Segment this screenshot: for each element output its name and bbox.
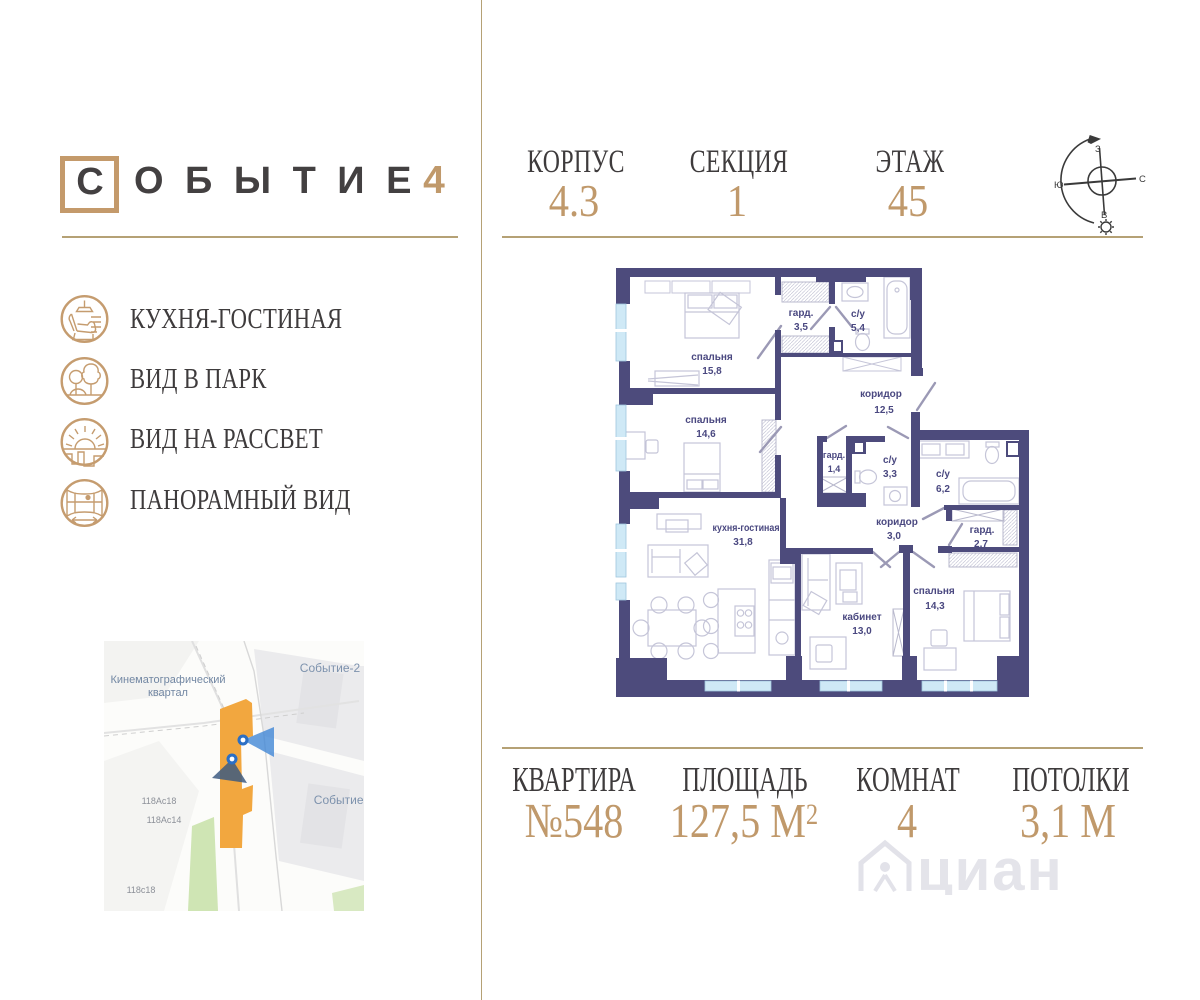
- svg-text:гард.: гард.: [789, 308, 814, 319]
- svg-text:спальня: спальня: [685, 415, 727, 426]
- svg-text:118с18: 118с18: [127, 885, 156, 895]
- svg-text:гард.: гард.: [823, 450, 845, 460]
- svg-text:13,0: 13,0: [852, 626, 872, 637]
- svg-text:с/у: с/у: [936, 469, 950, 480]
- svg-text:коридор: коридор: [876, 517, 918, 528]
- svg-text:кабинет: кабинет: [842, 611, 881, 623]
- svg-text:2,7: 2,7: [974, 539, 988, 550]
- svg-text:с/у: с/у: [883, 455, 897, 466]
- svg-text:118Ас14: 118Ас14: [147, 815, 182, 825]
- svg-text:гард.: гард.: [970, 525, 995, 536]
- svg-text:3,5: 3,5: [794, 322, 808, 333]
- svg-text:6,2: 6,2: [936, 484, 950, 495]
- svg-text:3,3: 3,3: [883, 469, 897, 480]
- svg-text:Кинематографический: Кинематографический: [110, 674, 225, 686]
- svg-text:Событие-2: Событие-2: [300, 661, 361, 675]
- svg-text:спальня: спальня: [913, 586, 955, 597]
- svg-text:5,4: 5,4: [851, 323, 865, 334]
- svg-text:15,8: 15,8: [702, 366, 722, 377]
- svg-text:с/у: с/у: [851, 309, 865, 320]
- svg-text:коридор: коридор: [860, 389, 902, 400]
- svg-text:12,5: 12,5: [874, 405, 894, 416]
- svg-text:циан: циан: [917, 838, 1064, 895]
- svg-text:118Ас18: 118Ас18: [142, 796, 177, 806]
- svg-text:спальня: спальня: [691, 352, 733, 363]
- svg-text:14,6: 14,6: [696, 429, 716, 440]
- svg-text:Событие-3: Событие-3: [314, 793, 364, 807]
- svg-text:3,0: 3,0: [887, 531, 901, 542]
- svg-text:31,8: 31,8: [733, 537, 753, 548]
- svg-text:1,4: 1,4: [828, 464, 841, 474]
- svg-text:квартал: квартал: [148, 687, 188, 699]
- svg-text:кухня-гостиная: кухня-гостиная: [713, 523, 780, 534]
- svg-text:14,3: 14,3: [925, 601, 945, 612]
